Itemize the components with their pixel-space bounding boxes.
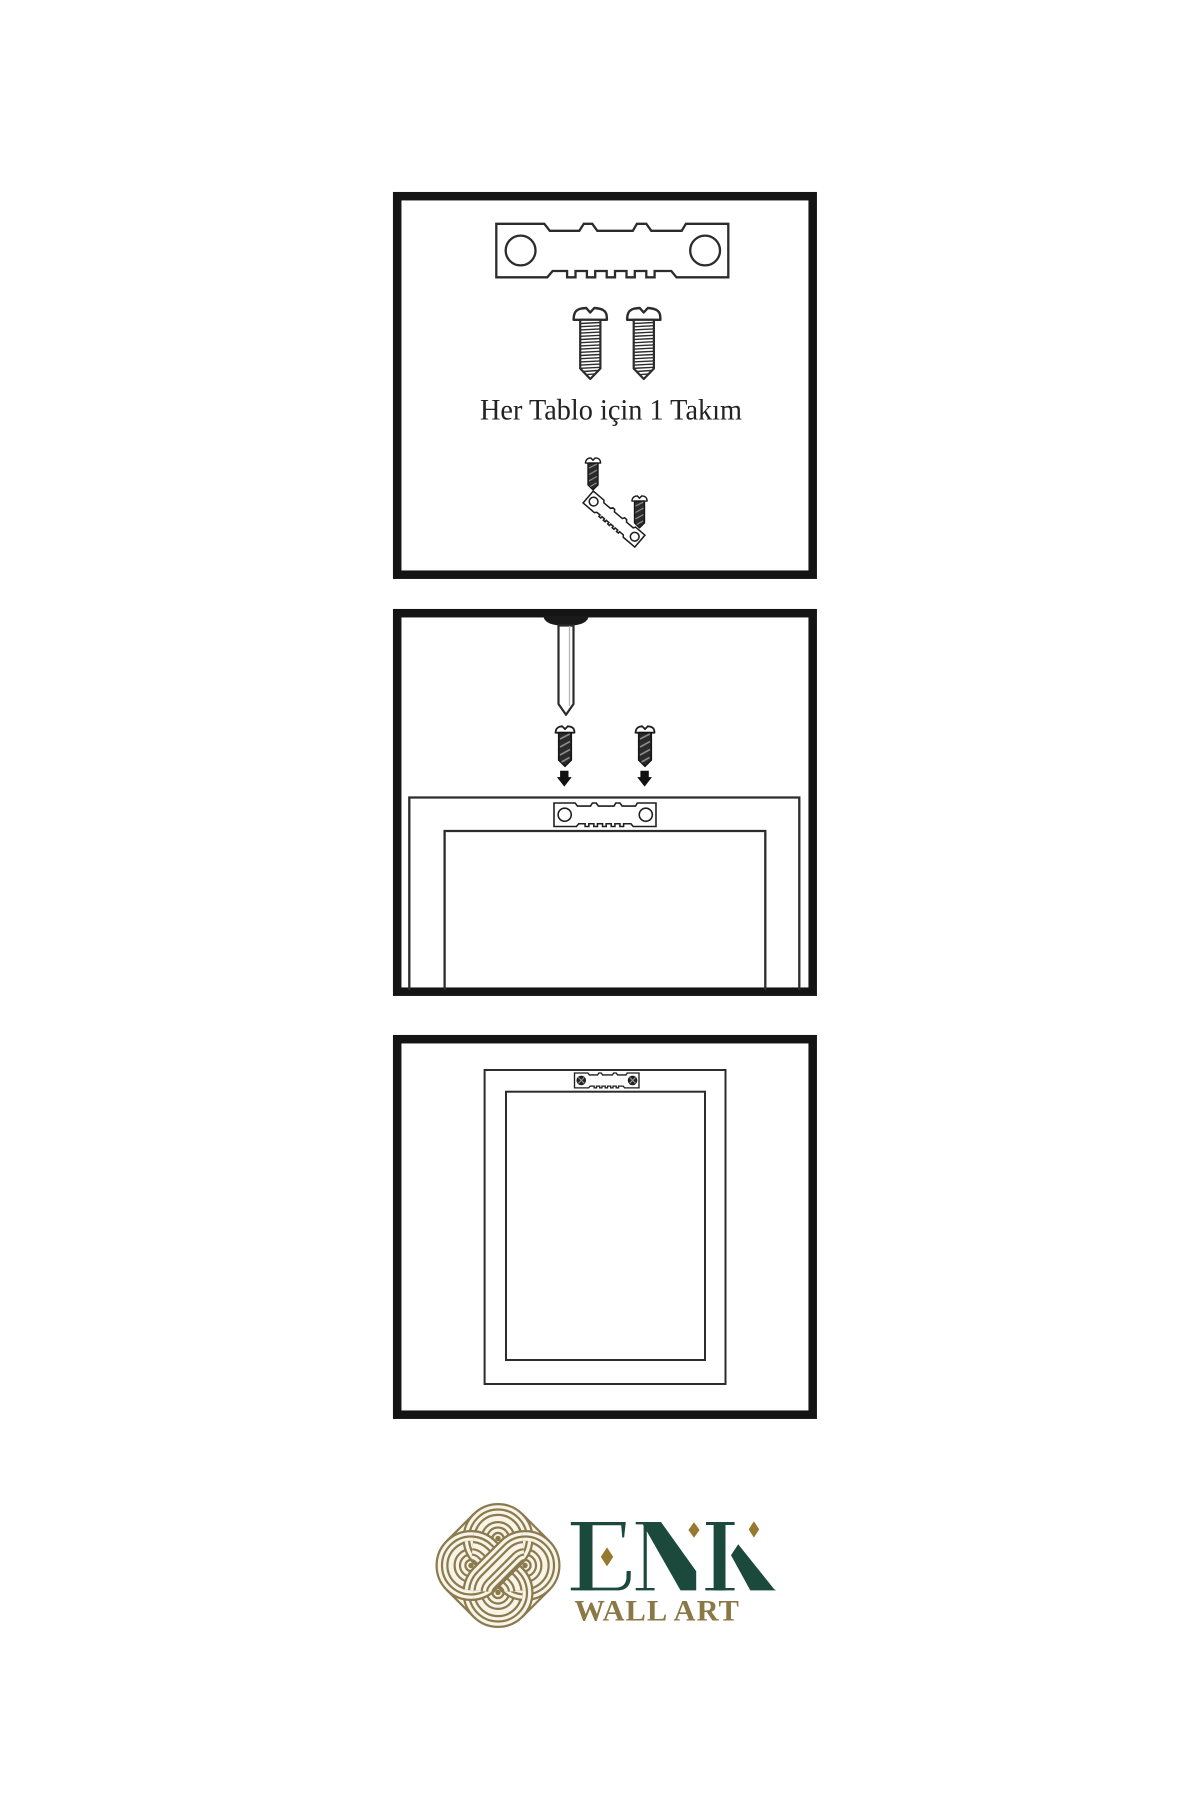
svg-text:WALL ART: WALL ART: [574, 1594, 740, 1627]
svg-text:Her Tablo için 1 Takım: Her Tablo için 1 Takım: [480, 394, 742, 427]
